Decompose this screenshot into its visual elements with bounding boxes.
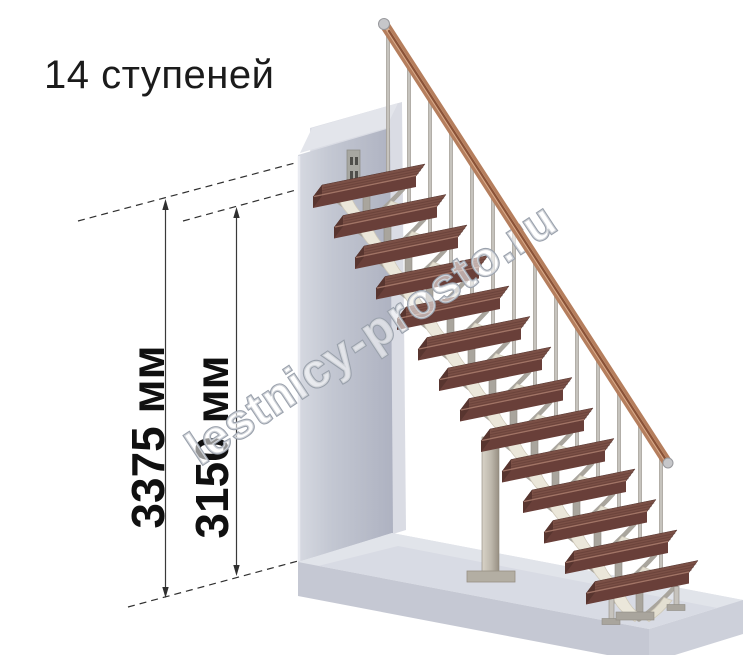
bottom-step-leg xyxy=(609,598,614,622)
staircase-dimension-diagram: 3375 мм 3150 мм 14 ступеней lestnicy-pro… xyxy=(0,0,743,655)
handrail-top-cap xyxy=(379,19,390,30)
baluster xyxy=(386,30,389,180)
mount-slot xyxy=(350,157,353,165)
arrowhead xyxy=(233,565,239,576)
mount-slot xyxy=(350,171,353,179)
baluster xyxy=(638,420,641,546)
support-column-base-plate xyxy=(467,571,515,582)
extension-line-top-3375 xyxy=(78,163,295,221)
extension-line-top-3150 xyxy=(183,190,296,221)
baluster xyxy=(617,388,620,516)
arrowhead xyxy=(233,207,239,218)
leg-base-plate xyxy=(667,605,685,611)
handrail-bottom-cap xyxy=(663,458,673,468)
baluster xyxy=(575,323,578,455)
dimension-label-3375: 3375 мм xyxy=(122,345,174,528)
arrowhead xyxy=(162,199,168,210)
extension-line-bottom xyxy=(128,561,298,607)
scene-svg: 3375 мм 3150 мм 14 ступеней lestnicy-pro… xyxy=(0,0,743,655)
baluster xyxy=(533,258,536,394)
title-step-count: 14 ступеней xyxy=(44,53,274,97)
support-column-post xyxy=(482,437,499,578)
baluster xyxy=(554,290,557,424)
stringer-base-plate xyxy=(616,612,654,620)
baluster xyxy=(596,355,599,485)
baluster xyxy=(659,453,662,577)
mount-slot xyxy=(355,157,358,165)
